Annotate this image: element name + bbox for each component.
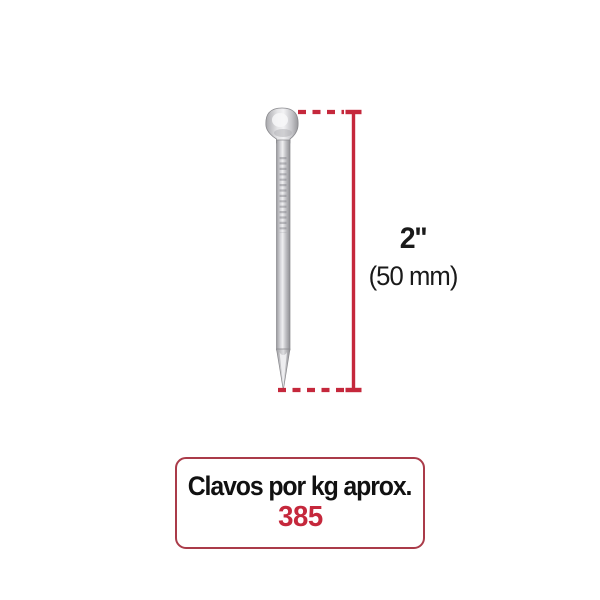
nail-image xyxy=(266,108,298,390)
nail-head-shadow xyxy=(274,129,292,137)
info-box-title: Clavos por kg aprox. xyxy=(188,472,412,502)
product-card: 2'' (50 mm) Clavos por kg aprox. 385 xyxy=(0,0,600,600)
info-box: Clavos por kg aprox. 385 xyxy=(175,457,425,549)
nail-shaft xyxy=(277,140,291,350)
info-box-count: 385 xyxy=(278,502,323,534)
dimension-label-mm: (50 mm) xyxy=(358,261,468,292)
dimension-lines xyxy=(278,112,362,390)
dimension-label-inches: 2'' xyxy=(380,222,447,256)
nail-head-highlight xyxy=(272,113,288,127)
